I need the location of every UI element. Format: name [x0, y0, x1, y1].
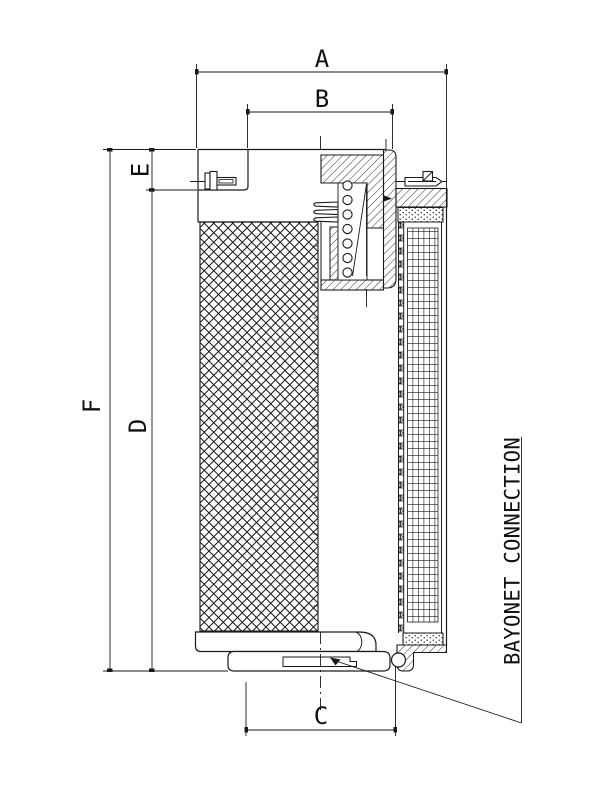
valve-prongs: [314, 202, 338, 222]
dim-label-c: C: [314, 702, 328, 730]
valve-seat-bar: [321, 280, 384, 290]
bottom-end-cap: [196, 632, 391, 671]
dim-label-a: A: [315, 45, 330, 73]
valve-shell: [384, 150, 397, 288]
technical-drawing-filter-element: BAYONET CONNECTION A B C F D E: [0, 0, 612, 792]
valve-inner-wall: [330, 227, 338, 280]
bypass-valve: [314, 150, 396, 290]
outer-element: [392, 189, 447, 672]
top-right-pin: [396, 172, 447, 187]
dim-label-e: E: [127, 163, 155, 177]
perforated-tube: [399, 222, 404, 633]
adhesive-strip-top: [398, 208, 443, 223]
adhesive-strip-bottom: [403, 633, 443, 645]
dim-label-b: B: [315, 85, 329, 113]
support-mesh: [408, 228, 439, 622]
filter-media: [200, 222, 318, 631]
page: { "drawing": { "dimension_labels": { "a"…: [0, 0, 612, 792]
top-left-pin: [190, 172, 236, 191]
dim-label-f: F: [78, 399, 106, 413]
o-ring: [392, 653, 406, 667]
bayonet-connection-label: BAYONET CONNECTION: [501, 437, 525, 665]
bayonet-slot: [283, 657, 357, 667]
dim-label-d: D: [124, 419, 152, 433]
top-right-flange: [396, 172, 447, 208]
spring-cavity: [338, 183, 367, 280]
